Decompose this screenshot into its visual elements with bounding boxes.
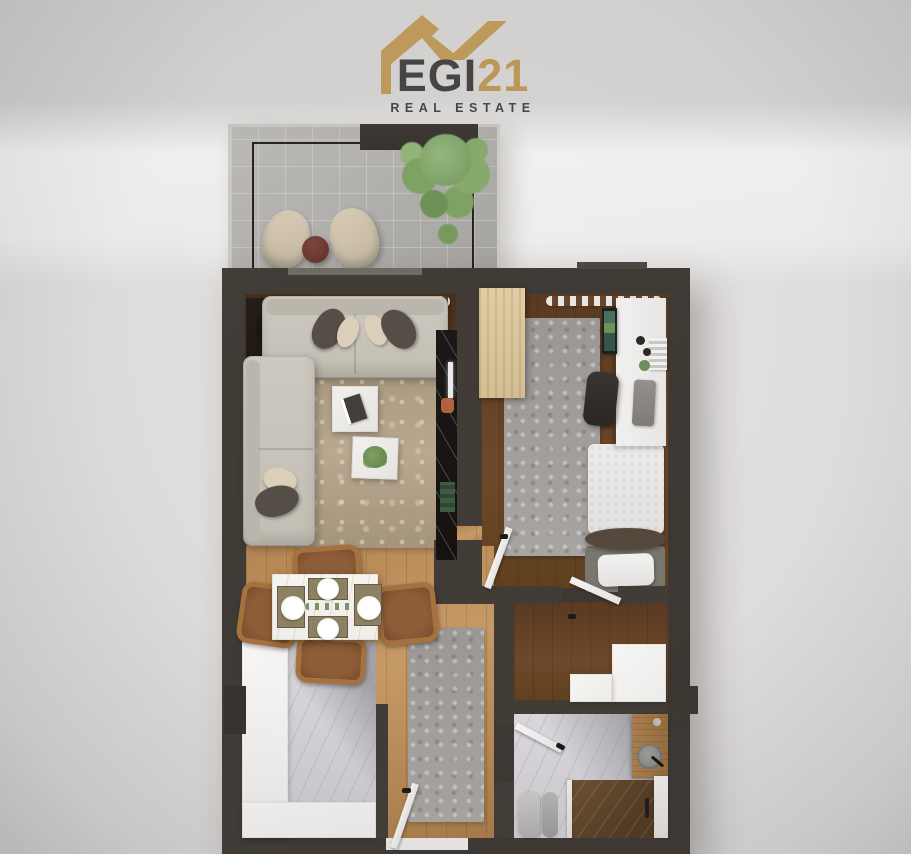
copper-vase xyxy=(441,398,454,413)
dining-table xyxy=(272,574,378,640)
dining-chair-right xyxy=(374,581,440,647)
desk-laptop xyxy=(632,379,656,426)
sofa-backrest xyxy=(266,299,444,315)
coffee-table-book xyxy=(340,394,367,425)
outdoor-side-table xyxy=(302,236,329,263)
corner-sofa-divider xyxy=(259,448,313,450)
shelf-books xyxy=(440,482,455,512)
wall-hall-closet xyxy=(494,602,514,724)
desk-pot-1 xyxy=(636,336,645,345)
desk-plant xyxy=(639,360,650,371)
desk-pot-2 xyxy=(643,348,651,356)
balcony-door-lintel xyxy=(288,268,422,275)
picture-art xyxy=(604,311,615,351)
office-chair xyxy=(582,370,619,427)
plate-top xyxy=(317,578,339,600)
toilet xyxy=(518,792,540,838)
picture-frame xyxy=(602,308,617,354)
closet-door-handle xyxy=(568,614,576,619)
hallway-runner-rug xyxy=(408,628,484,822)
logo-text-egi: EGI xyxy=(397,50,478,101)
wall-left-pillar xyxy=(224,686,246,734)
coffee-table xyxy=(332,386,378,432)
bed xyxy=(585,442,667,592)
kitchen-counter-bottom xyxy=(242,802,376,838)
closet-shelf-right xyxy=(612,644,666,702)
plate-left xyxy=(281,596,305,620)
shower-glass-left xyxy=(567,780,572,838)
shower-towel-bar xyxy=(645,798,649,818)
page: { "logo": { "brand_egi": "EGI", "brand_2… xyxy=(0,0,911,854)
vanity-soap xyxy=(653,718,661,726)
wardrobe xyxy=(479,288,525,398)
table-plant xyxy=(363,446,388,469)
logo-tagline: REAL ESTATE xyxy=(358,101,568,115)
wall-kitchen-stub xyxy=(376,704,388,838)
logo-text-21: 21 xyxy=(477,50,529,101)
logo-wordmark: EGI21 xyxy=(358,53,568,98)
shower-glass-right xyxy=(654,776,668,838)
plate-right xyxy=(357,596,381,620)
sofa-corner xyxy=(243,356,315,546)
wall-hall-bath xyxy=(494,782,514,838)
floorplan-stage: EGI21 REAL ESTATE xyxy=(0,0,911,854)
logo: EGI21 REAL ESTATE xyxy=(358,6,568,116)
bed-mattress xyxy=(588,444,664,534)
entry-door-handle xyxy=(402,788,411,793)
tv-screen xyxy=(448,362,453,398)
bedroom-door-handle xyxy=(500,534,508,539)
wall-closet-bath xyxy=(514,700,668,714)
plant-table xyxy=(351,436,398,480)
plate-bottom xyxy=(317,618,339,640)
closet-shelf-left xyxy=(570,674,612,702)
corner-sofa-backrest xyxy=(246,360,260,542)
bed-pillow xyxy=(597,553,654,587)
toilet-cistern xyxy=(542,792,558,838)
desk-organizer xyxy=(649,338,667,370)
wall-bedroom-closet xyxy=(618,586,668,604)
table-garnish xyxy=(305,603,355,610)
tv-marble-panel xyxy=(436,330,457,560)
balcony-plant xyxy=(420,134,472,186)
dining-chair-bottom xyxy=(295,634,367,686)
wall-stub-right xyxy=(690,686,698,714)
vanity-basin xyxy=(637,744,662,769)
bedroom-window-lintel xyxy=(577,262,647,269)
